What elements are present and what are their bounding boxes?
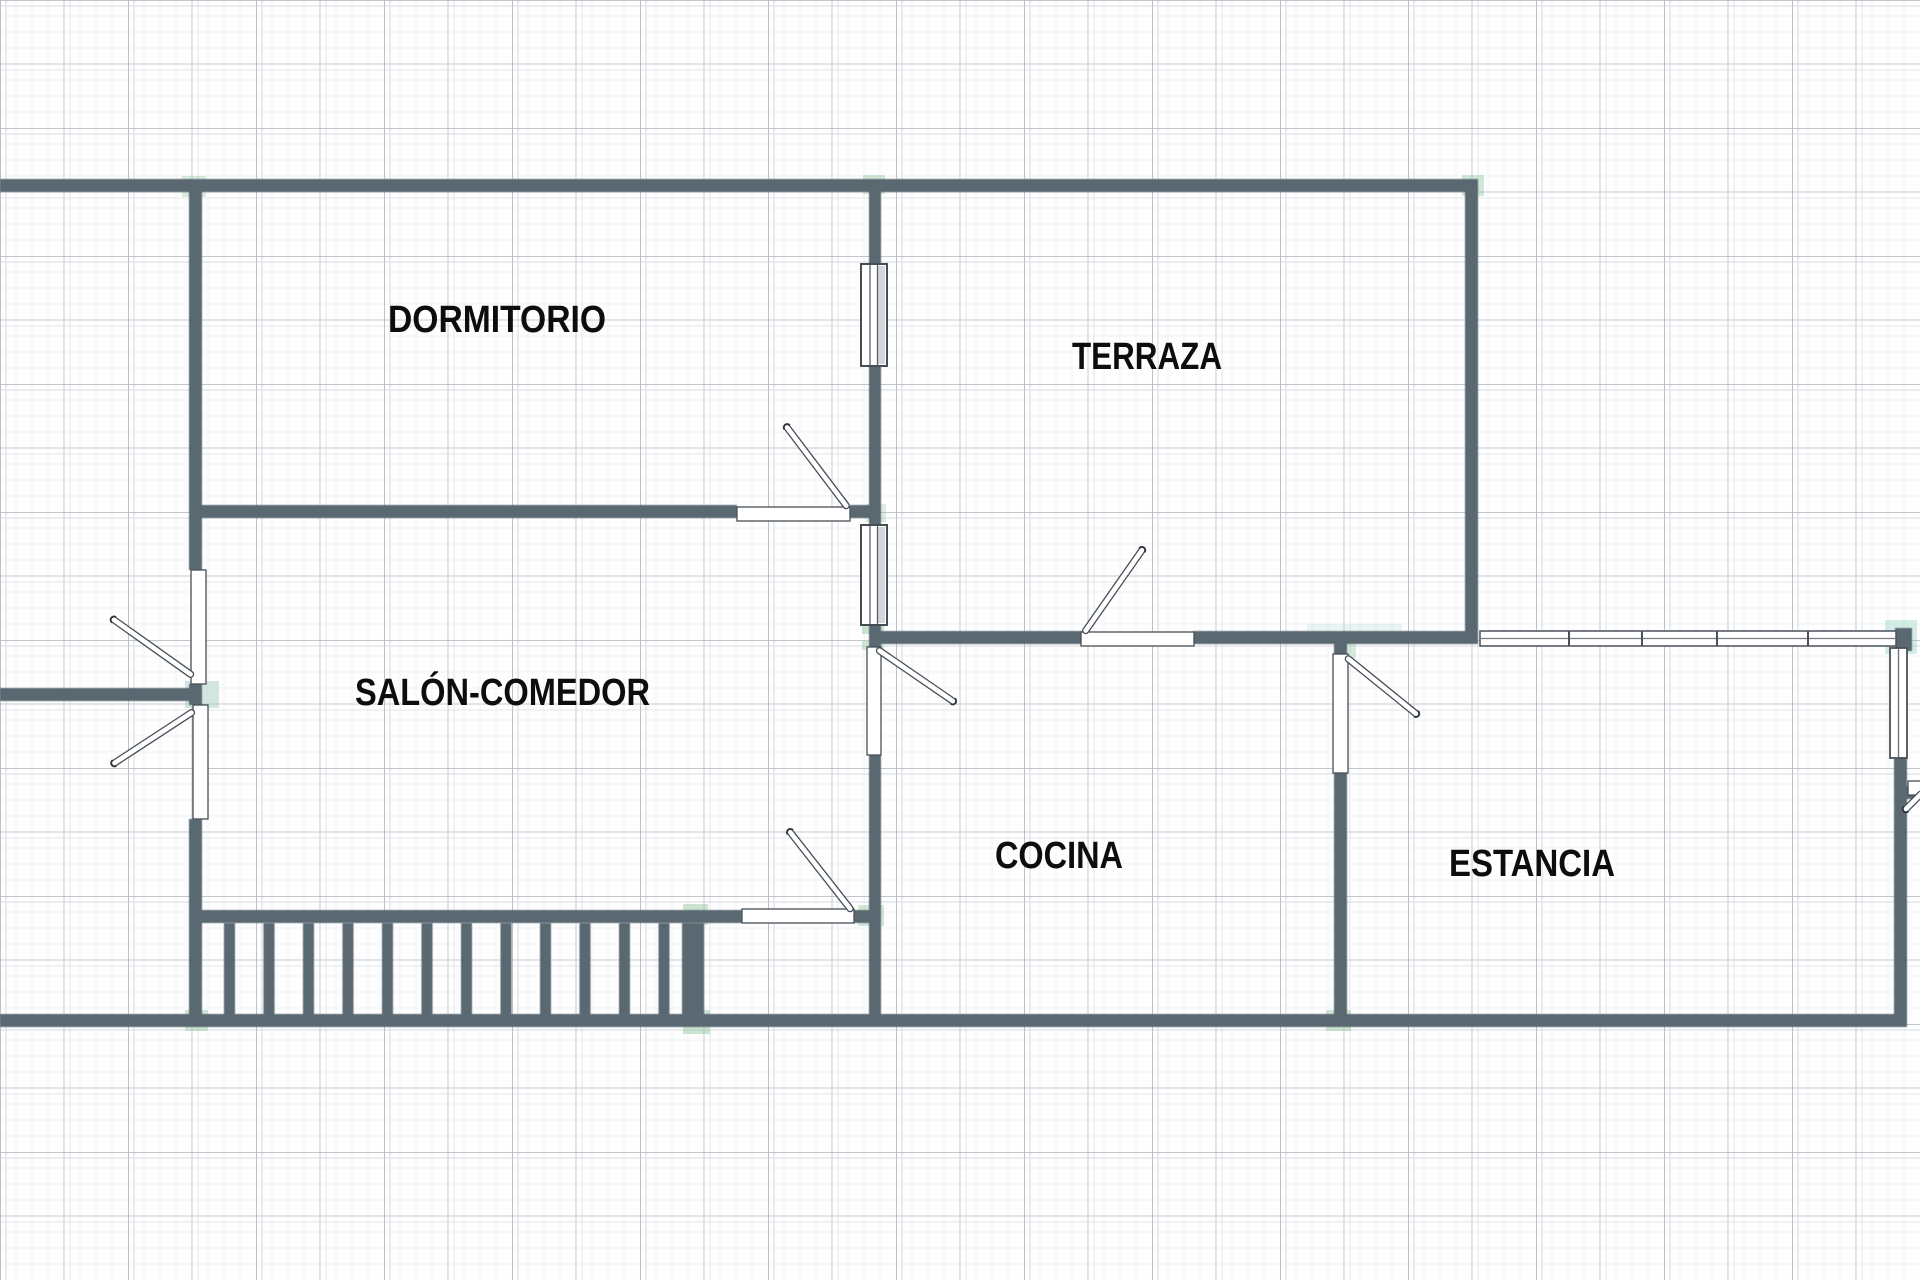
svg-text:COCINA: COCINA: [995, 835, 1123, 877]
svg-text:DORMITORIO: DORMITORIO: [388, 299, 606, 341]
svg-text:TERRAZA: TERRAZA: [1072, 336, 1222, 378]
svg-text:ESTANCIA: ESTANCIA: [1449, 843, 1615, 885]
svg-text:SALÓN-COMEDOR: SALÓN-COMEDOR: [355, 670, 650, 714]
